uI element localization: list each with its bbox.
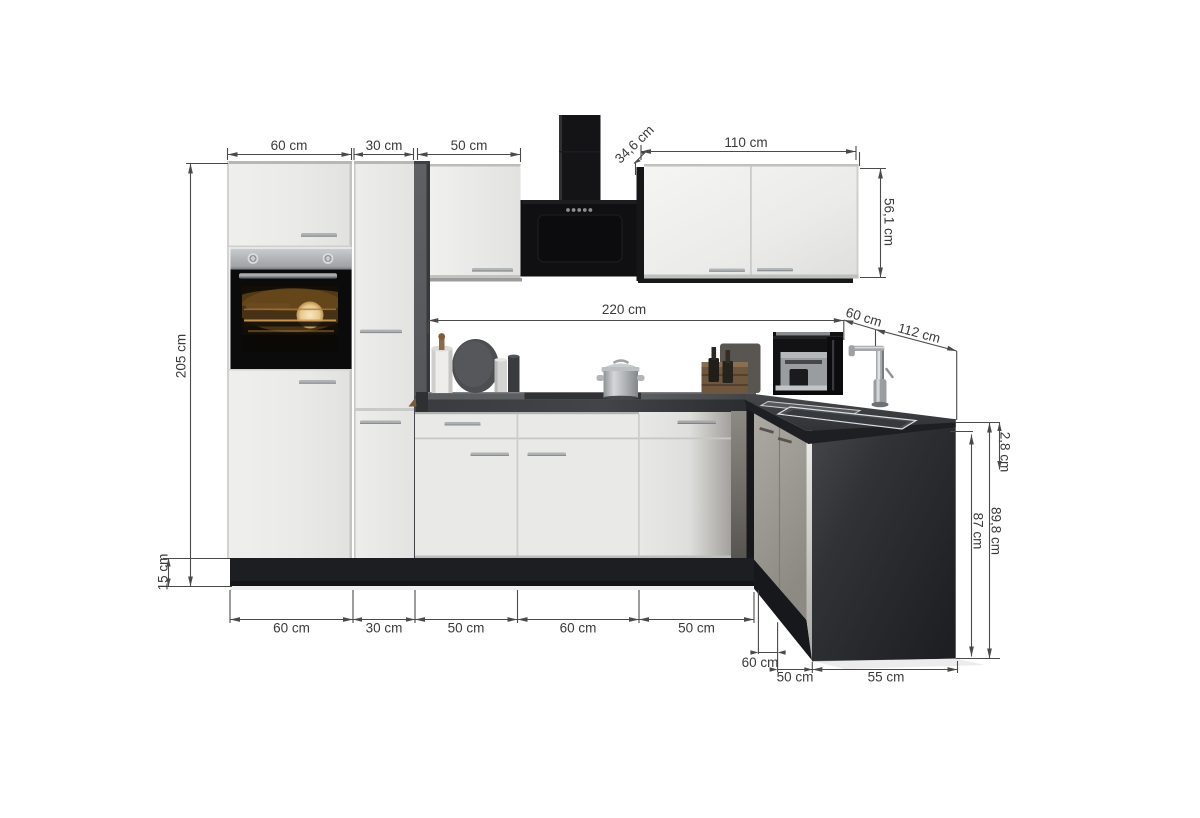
- svg-text:60 cm: 60 cm: [560, 621, 597, 636]
- svg-text:2,8 cm: 2,8 cm: [998, 432, 1013, 473]
- svg-text:55 cm: 55 cm: [868, 670, 905, 685]
- svg-text:50 cm: 50 cm: [451, 138, 488, 153]
- svg-text:205 cm: 205 cm: [174, 334, 189, 378]
- svg-text:30 cm: 30 cm: [366, 138, 403, 153]
- svg-text:87 cm: 87 cm: [971, 513, 986, 550]
- svg-text:60 cm: 60 cm: [271, 138, 308, 153]
- svg-text:15 cm: 15 cm: [156, 554, 171, 591]
- svg-text:56,1 cm: 56,1 cm: [882, 198, 897, 246]
- svg-text:50 cm: 50 cm: [678, 621, 715, 636]
- svg-text:60 cm: 60 cm: [273, 621, 310, 636]
- svg-text:60 cm: 60 cm: [742, 655, 779, 670]
- svg-text:30 cm: 30 cm: [366, 621, 403, 636]
- svg-text:50 cm: 50 cm: [448, 621, 485, 636]
- svg-text:50 cm: 50 cm: [777, 670, 814, 685]
- svg-text:89,8 cm: 89,8 cm: [989, 507, 1004, 555]
- svg-text:220 cm: 220 cm: [602, 302, 646, 317]
- svg-text:110 cm: 110 cm: [724, 135, 767, 150]
